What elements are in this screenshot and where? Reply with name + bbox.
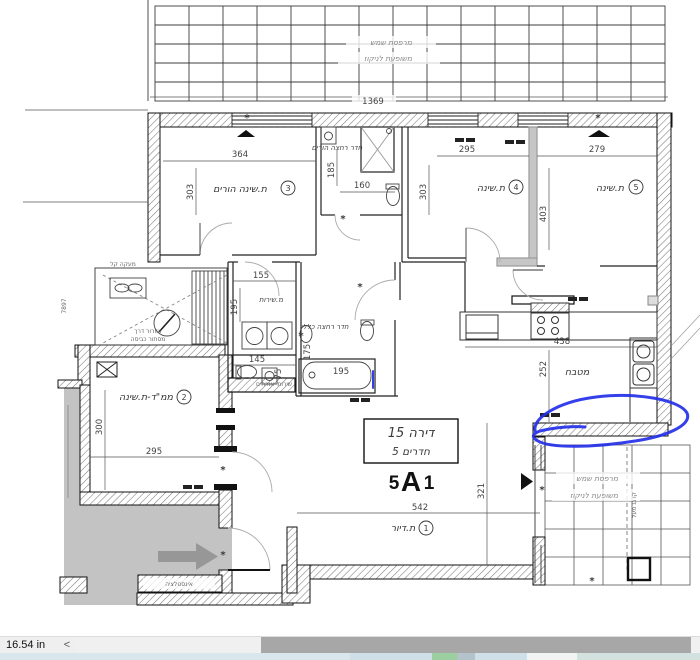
condenser-fan-icon bbox=[115, 284, 129, 292]
mamad-details bbox=[97, 362, 237, 490]
svg-text:*: * bbox=[220, 465, 226, 476]
dim-pbath-w: 160 bbox=[354, 181, 370, 191]
vent-triangle bbox=[237, 130, 255, 137]
measurement-label: 16.54 in bbox=[0, 639, 58, 651]
room-label-bedroom-5: ת.שינה bbox=[596, 183, 625, 194]
dim-r3-w: 364 bbox=[232, 150, 248, 160]
dim-guest-w: 145 bbox=[249, 355, 265, 365]
drawing-canvas: ** ** ** ** * מרפסת שמש משופעת לניקוז ת.… bbox=[0, 0, 700, 636]
dim-tub: 195 bbox=[333, 367, 349, 377]
floor-plan-drawing: ** ** ** ** * מרפסת שמש משופעת לניקוז ת.… bbox=[0, 0, 700, 636]
entry-triangle bbox=[521, 473, 533, 490]
railing-note: מעקה קל bbox=[110, 261, 136, 268]
room-label-mamad: ממ"ד-ת.שינה bbox=[119, 392, 174, 403]
roof-line-note: קו גג מעל bbox=[631, 492, 638, 518]
terrace-note-line1: מרפסת שמש bbox=[576, 474, 619, 483]
room-number-2: 2 bbox=[181, 393, 186, 402]
h-scrollbar-thumb[interactable] bbox=[261, 637, 691, 654]
strip-segment bbox=[457, 653, 475, 660]
background-app-strip bbox=[0, 653, 700, 660]
room-label-guest-wc: שירותי אורחים bbox=[256, 381, 292, 388]
svg-text:*: * bbox=[589, 576, 595, 587]
dim-r5-h: 403 bbox=[539, 206, 549, 222]
room-number-3: 3 bbox=[285, 184, 290, 193]
unit-code-variant: 1 bbox=[424, 473, 435, 494]
room-label-service: מ.שירות bbox=[259, 296, 283, 304]
room-number-5: 5 bbox=[633, 183, 638, 192]
room-label-family-bath: חדר רחצה כללי bbox=[301, 323, 349, 331]
strip-segment bbox=[475, 653, 527, 660]
room-label-kitchen: מטבח bbox=[565, 367, 590, 378]
room-label-parents-bedroom: ת.שינה הורים bbox=[213, 184, 267, 195]
strip-segment bbox=[432, 653, 457, 660]
pergola-grid bbox=[148, 0, 665, 101]
svg-text:*: * bbox=[357, 282, 363, 293]
dim-kitchen-w: 438 bbox=[554, 337, 570, 347]
strip-segment bbox=[577, 653, 700, 660]
unit-number: דירה 15 bbox=[388, 426, 436, 441]
unit-rooms-count: 5 חדרים bbox=[392, 446, 430, 458]
svg-text:*: * bbox=[595, 113, 601, 124]
dim-guest-h: 75 bbox=[274, 369, 284, 380]
dim-r3-h: 303 bbox=[186, 184, 196, 200]
dim-pbath-h: 185 bbox=[327, 162, 337, 178]
svg-text:*: * bbox=[340, 214, 346, 225]
dim-r4-h: 303 bbox=[419, 184, 429, 200]
h-scrollbar-track[interactable] bbox=[76, 637, 700, 654]
vent-note-line2: מסתור כביסה bbox=[131, 336, 166, 343]
vent-note-line1: אוורור דרך bbox=[134, 328, 161, 335]
blast-window bbox=[214, 408, 237, 490]
dim-living-w: 542 bbox=[412, 503, 428, 513]
fixtures bbox=[236, 127, 400, 393]
room-number-1: 1 bbox=[423, 524, 428, 533]
status-bar: 16.54 in < bbox=[0, 636, 700, 653]
scroll-left-button[interactable]: < bbox=[58, 639, 76, 651]
svg-text:*: * bbox=[244, 113, 250, 124]
svg-text:*: * bbox=[298, 331, 304, 342]
dim-kitchen-h: 252 bbox=[539, 361, 549, 377]
dim-fbath-h: 175 bbox=[303, 344, 313, 360]
svg-text:*: * bbox=[220, 550, 226, 561]
unit-code-letter: A bbox=[401, 466, 421, 497]
doors bbox=[200, 215, 543, 583]
dim-service-h: 195 bbox=[230, 299, 240, 315]
unit-title-block: דירה 15 5 חדרים 5 A 1 bbox=[364, 419, 458, 497]
pergola-note-line1: מרפסת שמש bbox=[370, 38, 413, 47]
dim-pergola: 1369 bbox=[362, 97, 384, 107]
room-label-parents-bath: חדר רחצה הורים bbox=[312, 144, 363, 152]
dim-mamad-h: 300 bbox=[95, 419, 105, 435]
terrace-grid bbox=[545, 445, 690, 585]
kitchen-counter bbox=[460, 296, 658, 422]
strip-segment bbox=[350, 653, 432, 660]
dim-living-h: 321 bbox=[477, 483, 487, 499]
unit-code-size: 5 bbox=[389, 473, 400, 494]
left-reference: 7897 bbox=[61, 298, 68, 313]
dim-mamad-w: 295 bbox=[146, 447, 162, 457]
dim-r4-w: 295 bbox=[459, 145, 475, 155]
installation-note: אינסטלציה bbox=[165, 581, 193, 588]
pergola-note-line2: משופעת לניקוז bbox=[364, 54, 413, 63]
door-stars: ** ** ** ** * bbox=[220, 113, 601, 587]
room-number-4: 4 bbox=[513, 183, 518, 192]
floor-plan-viewer: ** ** ** ** * מרפסת שמש משופעת לניקוז ת.… bbox=[0, 0, 700, 660]
dim-service-w: 155 bbox=[253, 271, 269, 281]
vent-triangle bbox=[588, 130, 610, 137]
strip-segment bbox=[527, 653, 577, 660]
room-label-living: ת.דיור bbox=[391, 523, 416, 534]
svg-text:*: * bbox=[539, 485, 545, 496]
room-label-bedroom-4: ת.שינה bbox=[477, 183, 506, 194]
interior-walls bbox=[160, 127, 657, 396]
terrace-note-line2: משופעת לניקוז bbox=[570, 491, 619, 500]
dim-r5-w: 279 bbox=[589, 145, 605, 155]
